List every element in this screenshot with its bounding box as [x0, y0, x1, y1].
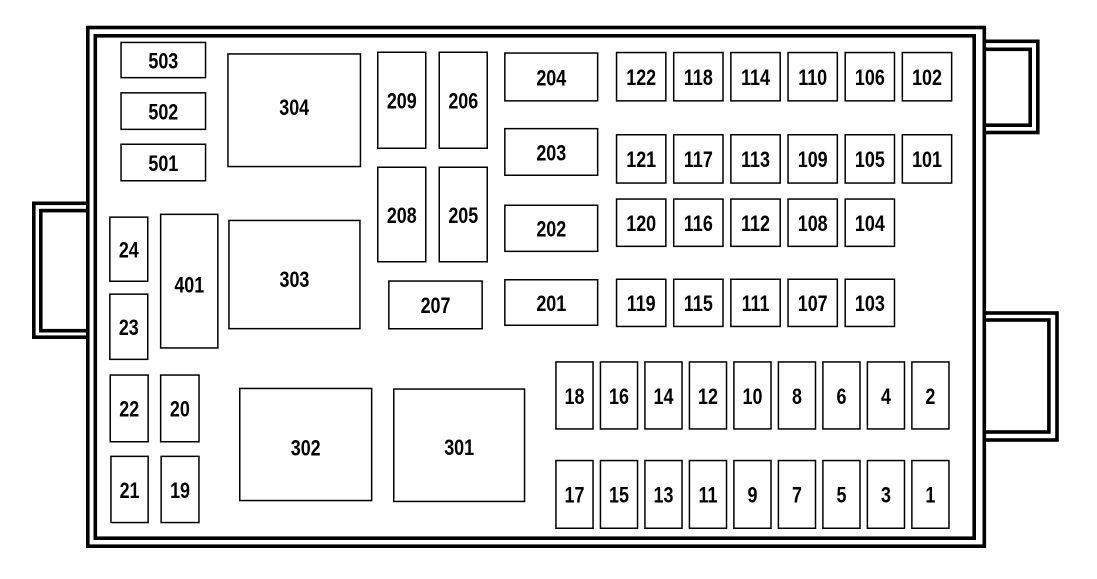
svg-text:24: 24 [119, 239, 140, 263]
svg-text:204: 204 [536, 67, 567, 91]
svg-text:14: 14 [654, 385, 675, 409]
svg-text:121: 121 [626, 149, 656, 173]
svg-text:304: 304 [279, 96, 310, 120]
svg-text:502: 502 [148, 101, 178, 125]
svg-text:208: 208 [387, 204, 417, 228]
svg-text:23: 23 [119, 316, 139, 340]
svg-text:117: 117 [684, 149, 713, 173]
svg-text:501: 501 [148, 152, 178, 176]
svg-text:2: 2 [925, 385, 935, 409]
svg-text:205: 205 [448, 204, 478, 228]
svg-text:8: 8 [792, 385, 802, 409]
svg-text:1: 1 [925, 484, 935, 508]
svg-text:16: 16 [609, 385, 629, 409]
svg-text:207: 207 [421, 295, 451, 319]
svg-text:116: 116 [684, 212, 713, 236]
svg-text:104: 104 [855, 212, 886, 236]
svg-text:206: 206 [448, 90, 478, 114]
svg-text:118: 118 [684, 66, 713, 90]
svg-text:120: 120 [626, 212, 656, 236]
svg-text:106: 106 [855, 66, 885, 90]
svg-text:202: 202 [536, 218, 566, 242]
svg-text:303: 303 [280, 268, 310, 292]
svg-text:17: 17 [565, 484, 585, 508]
svg-text:21: 21 [120, 479, 140, 503]
svg-text:15: 15 [609, 484, 629, 508]
svg-text:113: 113 [741, 149, 770, 173]
svg-text:201: 201 [536, 292, 566, 316]
svg-text:115: 115 [684, 293, 713, 317]
svg-text:301: 301 [444, 436, 474, 460]
svg-text:101: 101 [912, 149, 942, 173]
svg-text:107: 107 [798, 293, 828, 317]
svg-text:19: 19 [170, 479, 190, 503]
svg-text:119: 119 [627, 293, 656, 317]
svg-text:109: 109 [798, 149, 828, 173]
svg-text:11: 11 [698, 484, 717, 508]
svg-text:114: 114 [741, 66, 771, 90]
svg-text:112: 112 [741, 212, 770, 236]
svg-text:7: 7 [792, 484, 802, 508]
svg-text:110: 110 [798, 66, 827, 90]
svg-text:10: 10 [742, 385, 762, 409]
svg-text:203: 203 [536, 142, 566, 166]
svg-text:4: 4 [881, 385, 892, 409]
svg-text:503: 503 [148, 50, 178, 74]
svg-text:401: 401 [174, 274, 204, 298]
svg-text:111: 111 [742, 293, 770, 317]
svg-text:209: 209 [387, 90, 417, 114]
svg-text:12: 12 [698, 385, 718, 409]
svg-text:13: 13 [654, 484, 674, 508]
svg-text:9: 9 [747, 484, 757, 508]
svg-text:122: 122 [626, 66, 656, 90]
svg-text:302: 302 [291, 437, 321, 461]
svg-text:5: 5 [836, 484, 846, 508]
svg-text:3: 3 [881, 484, 891, 508]
svg-text:22: 22 [119, 398, 139, 422]
svg-text:18: 18 [565, 385, 585, 409]
svg-text:6: 6 [836, 385, 846, 409]
svg-text:105: 105 [855, 149, 885, 173]
svg-text:20: 20 [170, 398, 190, 422]
svg-text:103: 103 [855, 293, 885, 317]
svg-text:102: 102 [912, 66, 942, 90]
svg-text:108: 108 [798, 212, 828, 236]
